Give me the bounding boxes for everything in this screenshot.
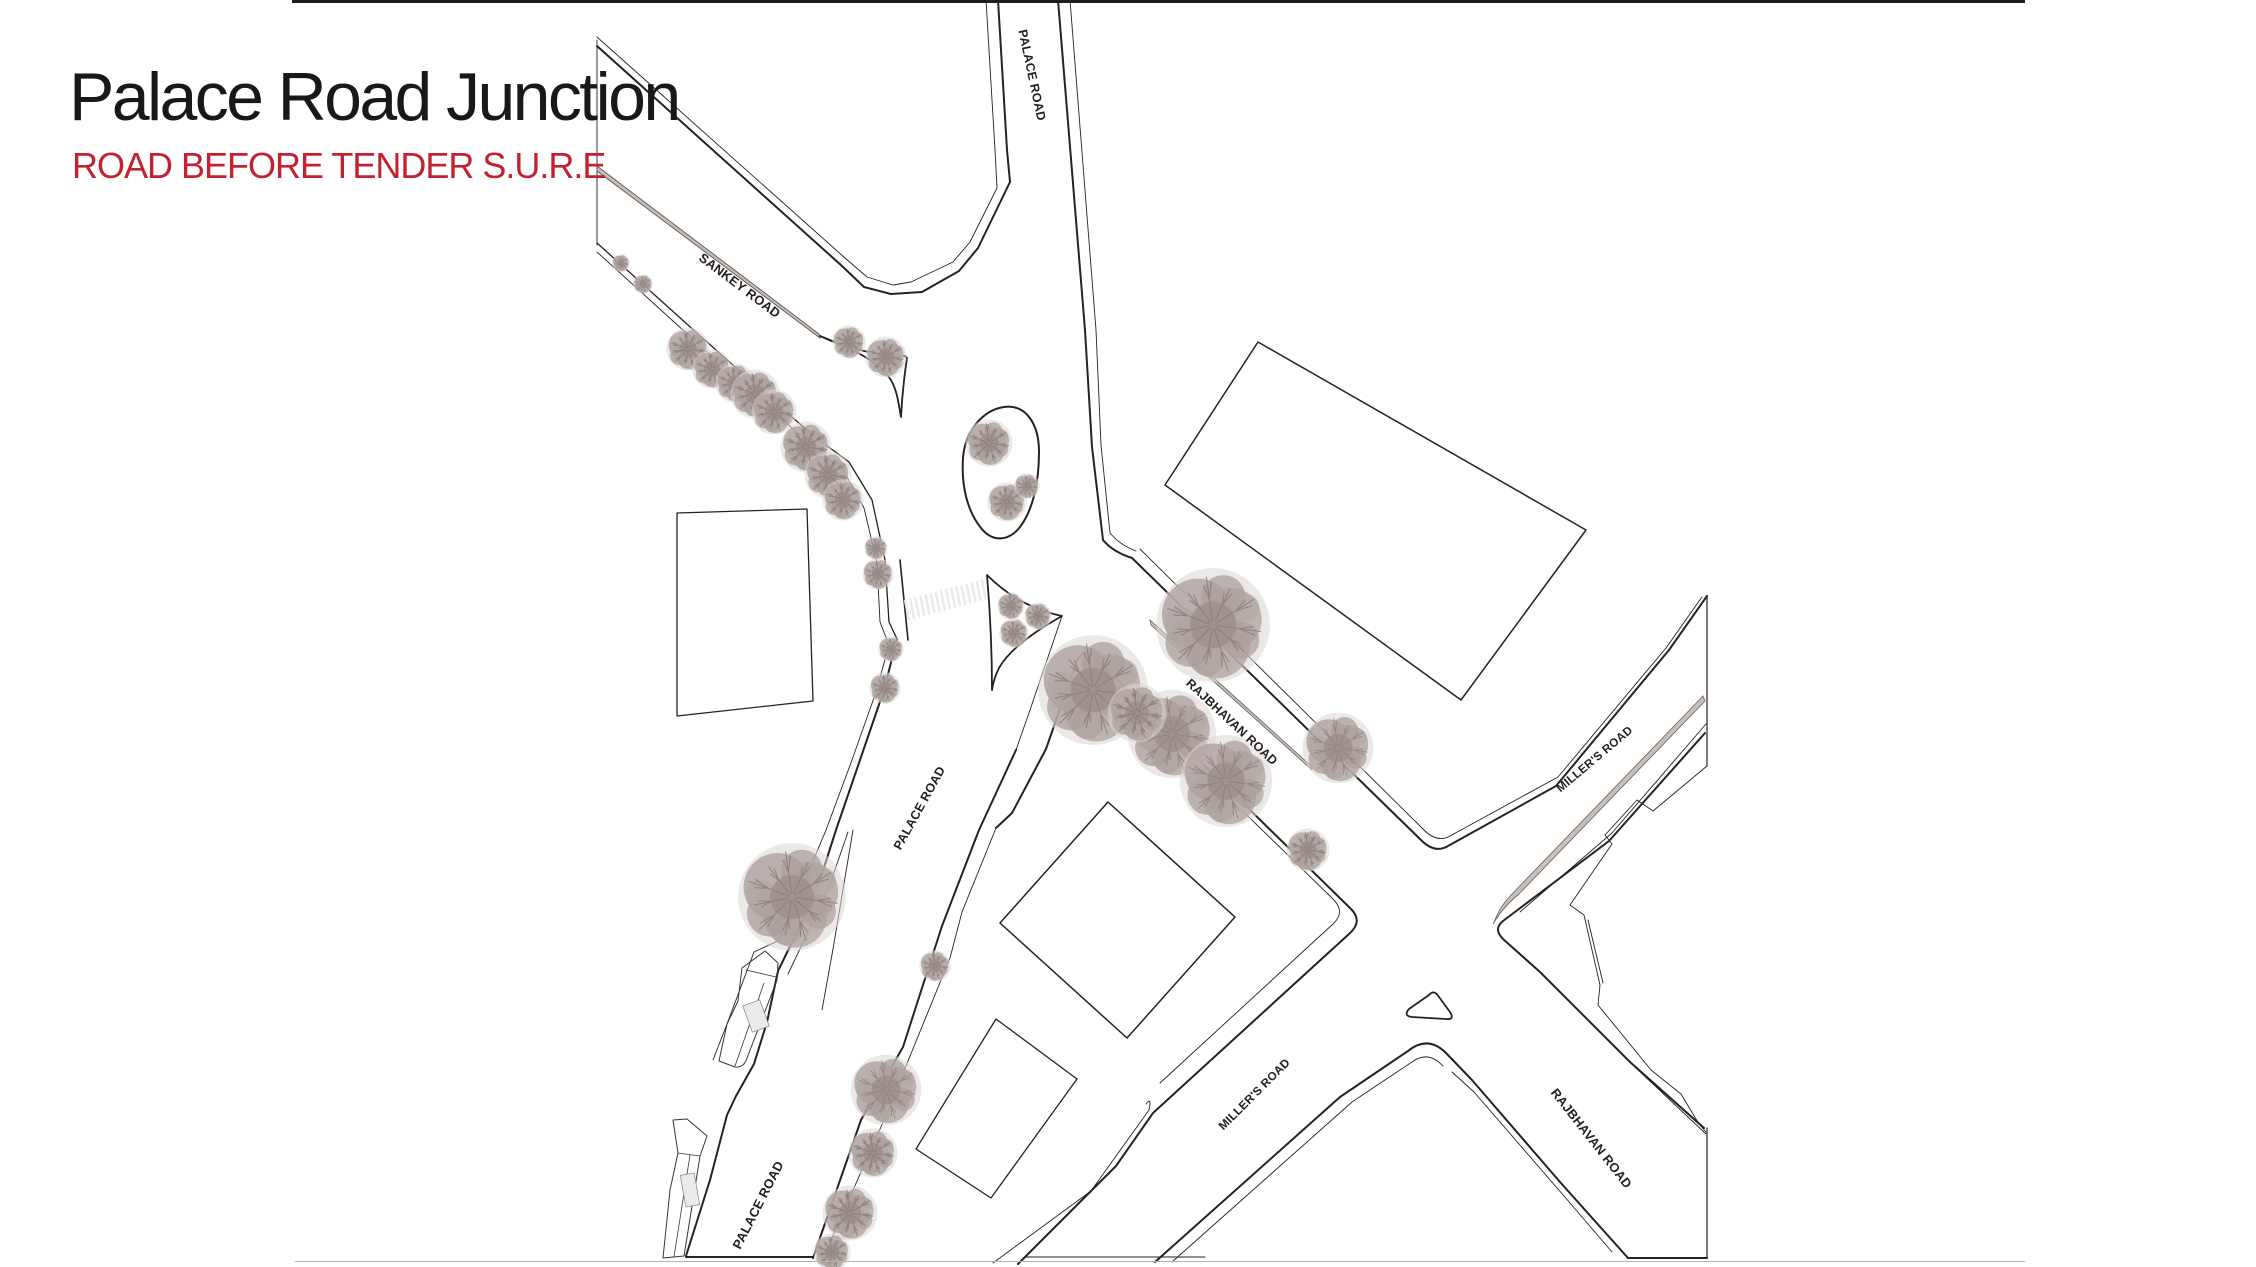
svg-text:RAJBHAVAN ROAD: RAJBHAVAN ROAD [1548, 1085, 1635, 1191]
svg-text:PALACE ROAD: PALACE ROAD [891, 764, 948, 852]
svg-text:PALACE ROAD: PALACE ROAD [729, 1159, 786, 1252]
svg-text:SANKEY ROAD: SANKEY ROAD [696, 250, 783, 321]
svg-text:MILLER'S ROAD: MILLER'S ROAD [1216, 1055, 1293, 1132]
svg-text:PALACE ROAD: PALACE ROAD [1015, 28, 1048, 122]
